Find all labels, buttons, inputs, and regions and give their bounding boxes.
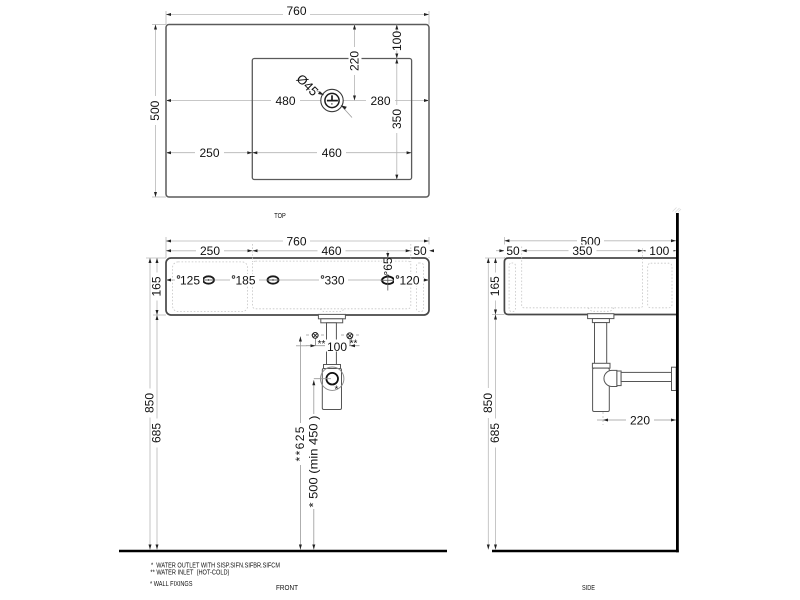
svg-text:TOP: TOP <box>274 213 286 220</box>
svg-text:**: ** <box>350 339 358 350</box>
svg-text:280: 280 <box>370 94 390 108</box>
svg-text:100: 100 <box>649 244 669 258</box>
svg-text:685: 685 <box>150 423 164 443</box>
svg-text:685: 685 <box>488 423 502 443</box>
svg-text:120: 120 <box>399 274 419 288</box>
svg-text:** WATER INLET (HOT-COLD): ** WATER INLET (HOT-COLD) <box>150 570 229 577</box>
svg-text:250: 250 <box>200 244 220 258</box>
svg-text:100: 100 <box>327 340 347 354</box>
svg-text:50: 50 <box>506 244 520 258</box>
svg-text:760: 760 <box>286 234 306 248</box>
svg-text:760: 760 <box>286 4 306 18</box>
svg-text:185: 185 <box>235 274 255 288</box>
svg-text:°65: °65 <box>381 257 395 275</box>
svg-text:220: 220 <box>630 413 650 427</box>
svg-text:* WATER OUTLET WITH SISP.SIFN: * WATER OUTLET WITH SISP.SIFN.SIFBR.SIFC… <box>151 563 280 570</box>
svg-text:*: * <box>335 385 339 396</box>
svg-text:480: 480 <box>275 94 295 108</box>
svg-text:125: 125 <box>180 274 200 288</box>
svg-text:500: 500 <box>148 100 162 120</box>
svg-text:460: 460 <box>322 146 342 160</box>
svg-text:SIDE: SIDE <box>582 585 595 592</box>
svg-text:FRONT: FRONT <box>276 585 299 592</box>
svg-text:* WALL FIXINGS: * WALL FIXINGS <box>150 581 193 588</box>
svg-text:350: 350 <box>390 109 404 129</box>
svg-text:165: 165 <box>488 276 502 296</box>
svg-text:50: 50 <box>413 244 427 258</box>
svg-text:250: 250 <box>199 146 219 160</box>
svg-text:460: 460 <box>321 244 341 258</box>
svg-text:* 500 (min 450 ): * 500 (min 450 ) <box>306 416 320 508</box>
svg-text:330: 330 <box>324 274 344 288</box>
svg-text:350: 350 <box>572 244 592 258</box>
svg-text:165: 165 <box>150 276 164 296</box>
svg-text:850: 850 <box>481 393 495 413</box>
svg-text:850: 850 <box>143 393 157 413</box>
svg-text:**: ** <box>318 339 326 350</box>
svg-text:**625: **625 <box>293 426 307 461</box>
svg-text:100: 100 <box>390 31 404 51</box>
svg-text:220: 220 <box>348 51 362 71</box>
